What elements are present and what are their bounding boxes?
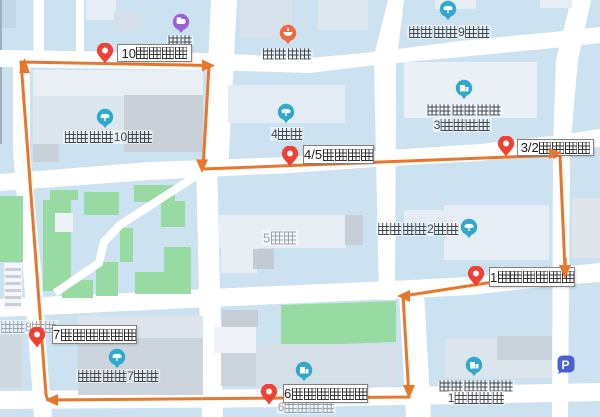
svg-text:P: P: [561, 358, 569, 372]
